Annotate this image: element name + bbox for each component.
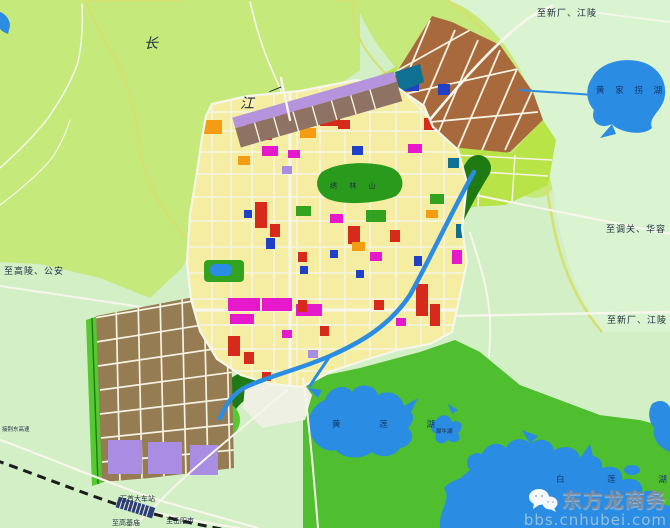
map-canvas: 长 江 — 至新厂、江陵 黄 家 拐 湖 至调关、华容 至新厂、江陵 至高陵、公… xyxy=(0,0,670,528)
label-station: 石首大车站 xyxy=(120,494,155,503)
label-yangtze-1: 长 xyxy=(144,36,159,52)
label-xiulin-hill: 绣 林 山 xyxy=(330,181,380,190)
urban-planning-map: 长 江 — 至新厂、江陵 黄 家 拐 湖 至调关、华容 至新厂、江陵 至高陵、公… xyxy=(0,0,670,528)
label-road-gaoling: 至高陵、公安 xyxy=(4,265,64,277)
label-lake-huangjiaguai: 黄 家 拐 湖 xyxy=(596,85,666,96)
label-road-gaojimiao: 至高基庙 xyxy=(112,518,140,527)
label-lake-xiniu: 犀牛湖 xyxy=(436,427,453,435)
label-expressway: 接荆东高速 xyxy=(2,425,30,433)
label-lake-huanglian: 黄 莲 湖 xyxy=(332,419,453,430)
label-road-e-xinchang: 至新厂、江陵 xyxy=(607,314,667,326)
label-lake-bailian: 白 莲 湖 xyxy=(556,474,670,485)
label-road-ne-top: 至新厂、江陵 xyxy=(537,7,597,19)
label-road-yueyang: 至岳阳市 xyxy=(166,516,194,525)
label-road-diaoguan: 至调关、华容 xyxy=(606,223,666,235)
label-yangtze-2: 江 xyxy=(240,96,256,112)
